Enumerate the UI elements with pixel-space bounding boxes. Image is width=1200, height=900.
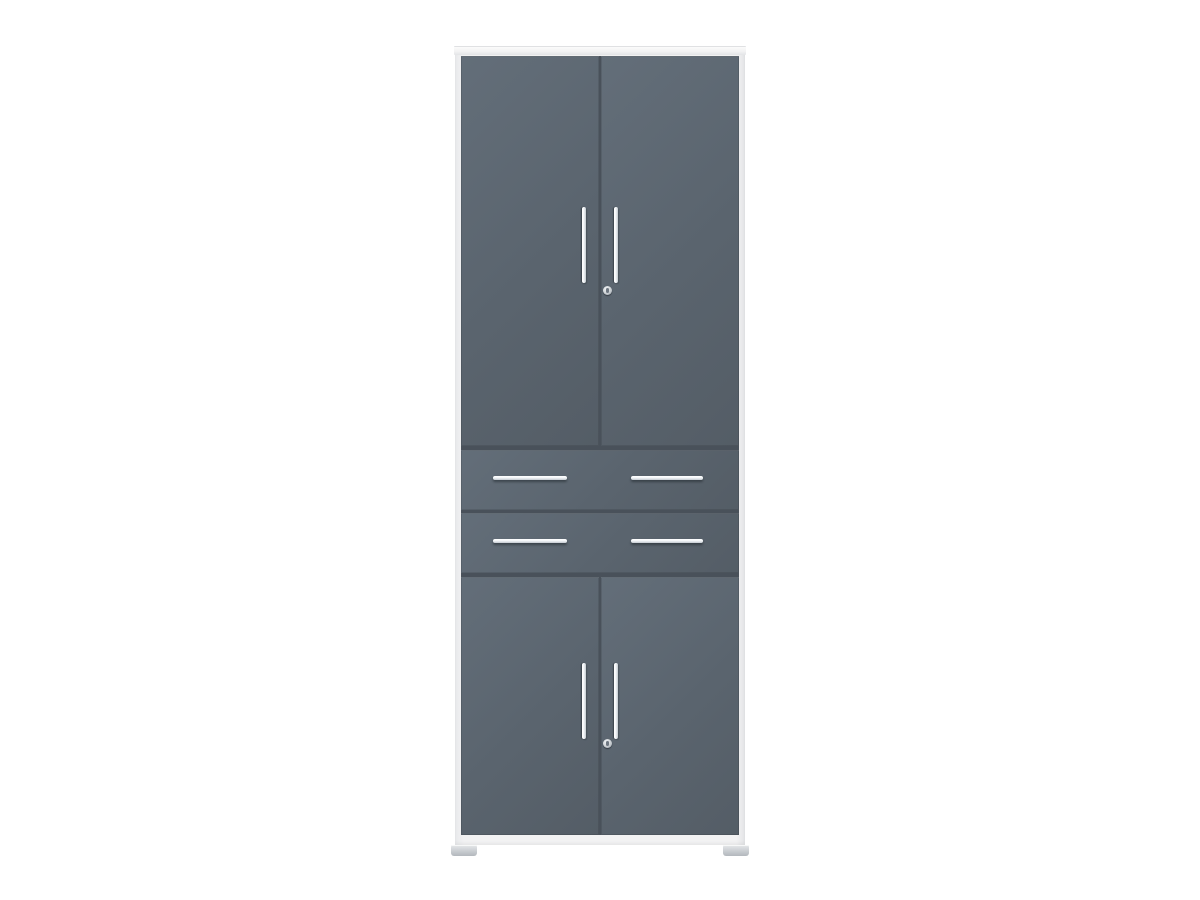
lower-drawer — [461, 513, 739, 573]
cabinet-fronts — [461, 56, 739, 835]
bottom-left-door-handle — [582, 663, 586, 739]
top-right-door — [601, 56, 739, 446]
cabinet — [455, 46, 745, 856]
lower-drawer-right-handle — [631, 539, 703, 543]
lower-drawer-left-handle — [493, 539, 567, 543]
upper-drawer-left-handle — [493, 476, 567, 480]
right-foot — [723, 845, 749, 856]
top-left-door-handle — [582, 207, 586, 283]
bottom-right-door-handle — [614, 663, 618, 739]
top-door-lock — [603, 286, 612, 295]
bottom-left-door — [461, 577, 599, 835]
bottom-door-lock — [603, 739, 612, 748]
bottom-right-door — [601, 577, 739, 835]
left-foot — [451, 845, 477, 856]
top-right-door-handle — [614, 207, 618, 283]
cabinet-frame — [455, 55, 745, 845]
upper-drawer-right-handle — [631, 476, 703, 480]
upper-drawer — [461, 450, 739, 510]
product-photo — [0, 0, 1200, 900]
cabinet-top-rim — [454, 46, 746, 55]
top-left-door — [461, 56, 599, 446]
